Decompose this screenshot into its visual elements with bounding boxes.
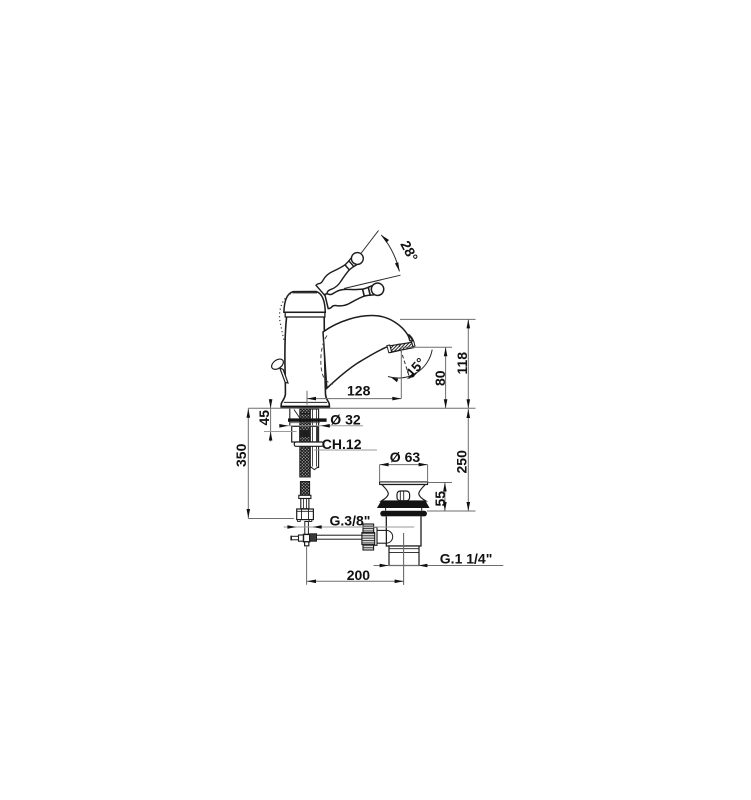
- svg-text:45: 45: [256, 410, 272, 426]
- svg-text:118: 118: [454, 352, 470, 375]
- svg-text:G.1 1/4": G.1 1/4": [440, 550, 493, 566]
- svg-text:G.3/8": G.3/8": [330, 513, 371, 529]
- svg-text:CH.12: CH.12: [322, 436, 362, 452]
- svg-text:Ø 32: Ø 32: [330, 411, 361, 427]
- svg-text:80: 80: [432, 370, 448, 386]
- svg-text:350: 350: [233, 443, 249, 467]
- svg-text:Ø 63: Ø 63: [390, 449, 421, 465]
- svg-text:128: 128: [347, 383, 371, 399]
- svg-text:250: 250: [454, 450, 470, 474]
- svg-text:55: 55: [432, 491, 448, 507]
- svg-text:200: 200: [347, 567, 371, 583]
